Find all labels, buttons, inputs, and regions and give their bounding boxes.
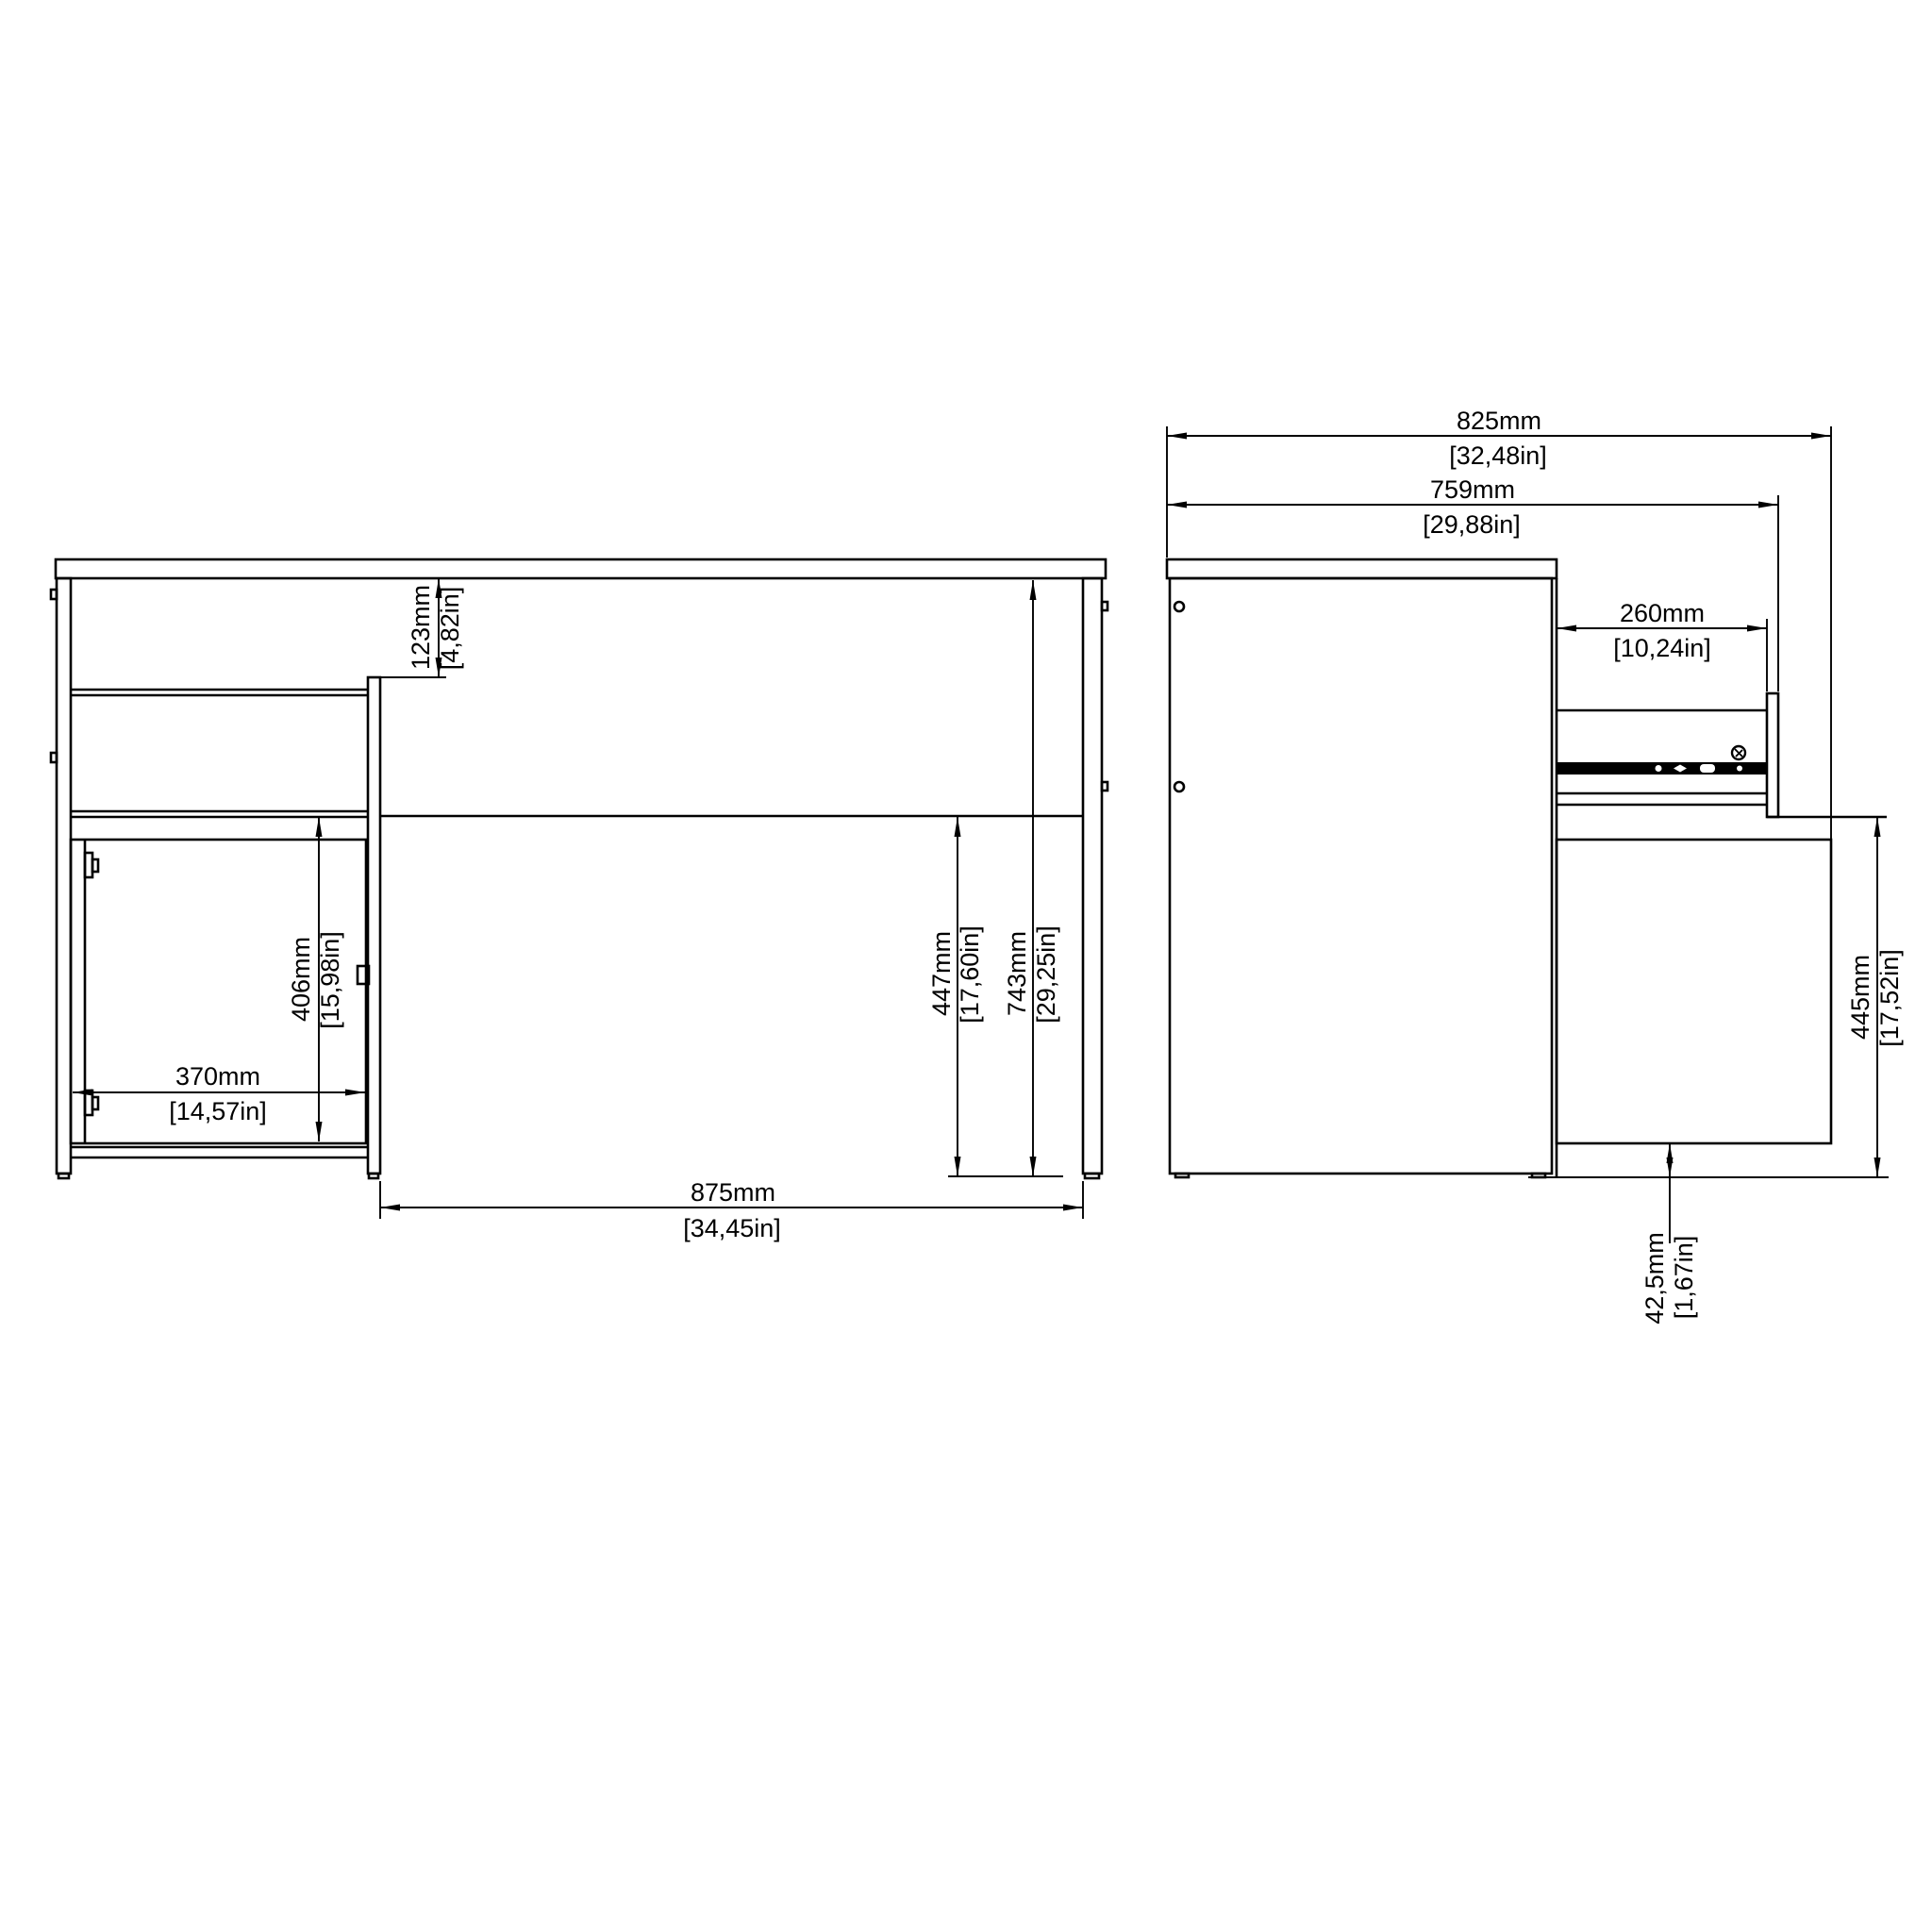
side-panel [1170, 578, 1552, 1174]
desktop-front [56, 559, 1106, 578]
slide-hole-icon [1737, 766, 1742, 772]
dim-42-5-mm-label: 42,5mm [1641, 1232, 1669, 1324]
dimension-743: 743mm [29,25in] [948, 580, 1063, 1176]
dim-825-inch-label: [32,48in] [1449, 441, 1547, 470]
dim-406-inch-label: [15,98in] [316, 931, 344, 1029]
cam-fitting-left-bottom [51, 753, 57, 762]
foot-right [1085, 1174, 1099, 1178]
dim-759-inch-label: [29,88in] [1423, 510, 1521, 539]
dim-743-mm-label: 743mm [1003, 931, 1031, 1016]
dimension-875: 875mm [34,45in] [380, 1178, 1083, 1242]
dim-875-inch-label: [34,45in] [683, 1214, 781, 1242]
dim-123-inch-label: [4,82in] [436, 587, 464, 671]
dim-447-inch-label: [17,60in] [956, 925, 984, 1024]
dim-825-mm-label: 825mm [1457, 407, 1541, 435]
dim-260-inch-label: [10,24in] [1613, 634, 1711, 662]
left-side-panel [57, 578, 71, 1174]
drawer-front-panel-side [1767, 693, 1778, 817]
dim-445-mm-label: 445mm [1846, 955, 1874, 1040]
cam-hole-bottom [1174, 782, 1184, 791]
slide-slot-icon [1700, 764, 1715, 773]
dim-370-inch-label: [14,57in] [169, 1097, 267, 1125]
foot-rear-side [1175, 1174, 1189, 1177]
dim-370-mm-label: 370mm [175, 1062, 260, 1091]
drawer-extended [1557, 693, 1778, 817]
dimension-370: 370mm [14,57in] [73, 1062, 365, 1125]
dimension-260: 260mm [10,24in] [1557, 599, 1767, 691]
front-view: 123mm [4,82in] 406mm [15,98in] 370mm [14… [51, 559, 1108, 1242]
dimension-445: 445mm [17,52in] [1846, 817, 1904, 1177]
side-view: 825mm [32,48in] 759mm [29,88in] 260mm [1… [1167, 407, 1904, 1324]
drawer-front [71, 690, 368, 817]
door-hinge-bottom-plate [92, 1097, 98, 1109]
dim-42-5-inch-label: [1,67in] [1670, 1236, 1698, 1320]
cam-fitting-right-top [1102, 602, 1108, 610]
right-leg-panel [1083, 578, 1102, 1174]
dim-123-mm-label: 123mm [407, 585, 435, 670]
dimension-447: 447mm [17,60in] [927, 817, 984, 1176]
technical-drawing: 123mm [4,82in] 406mm [15,98in] 370mm [14… [0, 0, 1932, 1932]
foot-left [58, 1174, 69, 1178]
dim-447-mm-label: 447mm [927, 931, 956, 1016]
cam-hole-top [1174, 602, 1184, 611]
dim-875-mm-label: 875mm [691, 1178, 775, 1207]
cam-fitting-right-bottom [1102, 782, 1108, 791]
pedestal-right-wall [368, 677, 380, 1174]
desktop-side [1167, 559, 1557, 578]
dim-743-inch-label: [29,25in] [1032, 925, 1060, 1024]
cam-fitting-left-top [51, 590, 57, 599]
dim-759-mm-label: 759mm [1430, 475, 1515, 504]
door-hinge-top-plate [92, 859, 98, 872]
dimension-123: 123mm [4,82in] [380, 578, 464, 677]
dimension-825: 825mm [32,48in] [1167, 407, 1831, 840]
door-open-side [1557, 840, 1831, 1143]
foot-pedestal [369, 1174, 378, 1178]
slide-hole-icon [1656, 765, 1662, 772]
dim-406-mm-label: 406mm [287, 937, 315, 1022]
dim-260-mm-label: 260mm [1620, 599, 1705, 627]
dim-445-inch-label: [17,52in] [1875, 949, 1904, 1047]
dimension-42-5: 42,5mm [1,67in] [1641, 1143, 1698, 1324]
